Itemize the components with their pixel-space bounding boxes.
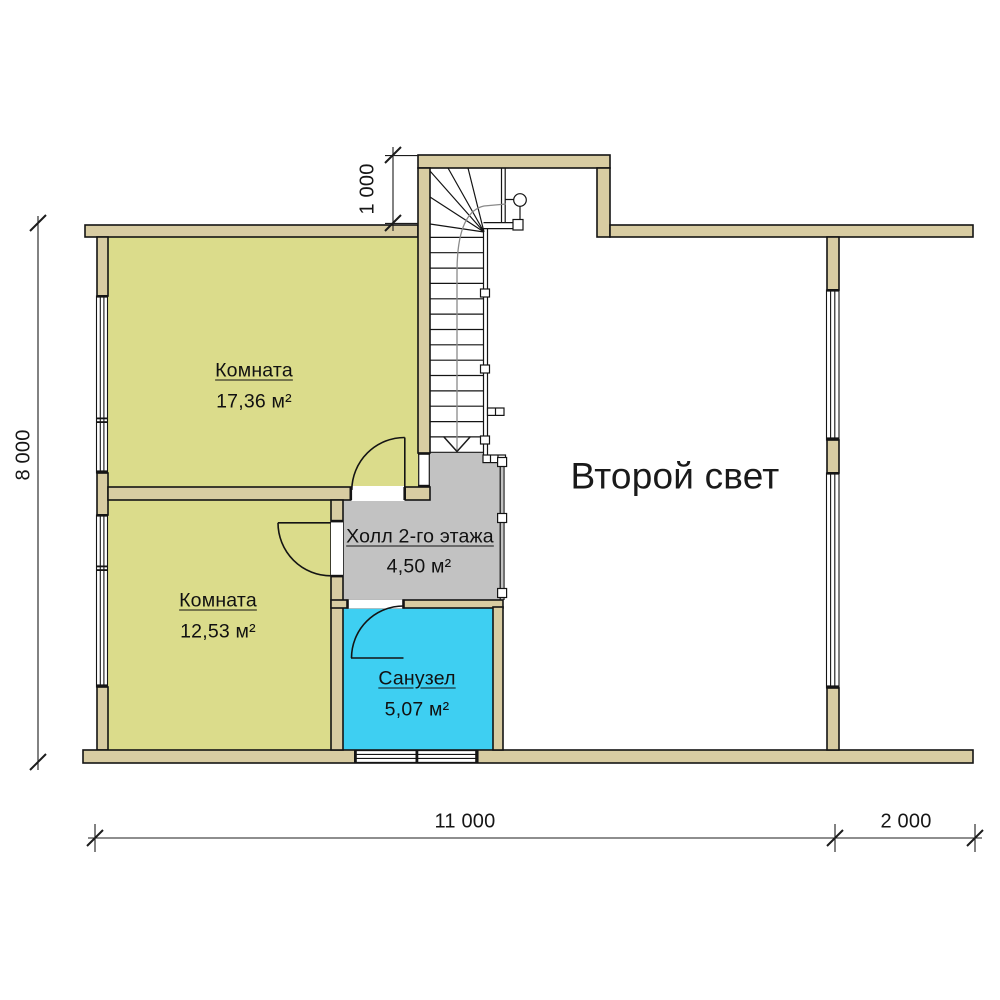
railing-post (498, 514, 507, 523)
bathroom-area: 5,07 м² (385, 699, 450, 722)
wall-right-pier-bottom (827, 688, 839, 750)
window-left-lower (97, 514, 108, 687)
hall-area: 4,50 м² (387, 556, 452, 579)
dim-label-8000: 8 000 (13, 429, 36, 480)
railing-post (498, 589, 507, 598)
open-space-label: Второй свет (550, 456, 800, 499)
newel-column (514, 194, 527, 207)
room-1-label: Комната (215, 360, 293, 383)
room-1-area: 17,36 м² (216, 391, 292, 414)
dim-label-1000: 1 000 (357, 163, 380, 214)
wall-left-pier (97, 473, 108, 515)
rail-connector (488, 408, 505, 415)
wall-left-lower (97, 687, 108, 750)
landing-edge (502, 168, 506, 222)
wall-stair-top (418, 155, 610, 168)
stair-handrail (484, 228, 488, 455)
staircase (430, 168, 526, 463)
dim-left-8000 (30, 215, 46, 770)
handrail-post (481, 365, 490, 373)
wall-bath-right (493, 607, 503, 750)
dim-label-11000: 11 000 (435, 811, 496, 834)
newel-post (513, 220, 523, 231)
handrail-post (481, 436, 490, 444)
dim-bottom (87, 824, 983, 852)
wall-bottom (83, 750, 973, 763)
wall-stair-bay-right (597, 168, 610, 237)
floor-plan: Комната 17,36 м² Комната 12,53 м² Холл 2… (0, 0, 1000, 1000)
wall-top-left (85, 225, 418, 237)
wall-right-pier-mid (827, 440, 839, 473)
stair-winders (430, 168, 484, 232)
wall-room1-hall-stub (405, 487, 430, 500)
dim-label-2000: 2 000 (880, 811, 931, 834)
hall-label: Холл 2-го этажа (346, 526, 494, 549)
wall-stairwell-left (418, 168, 430, 453)
dim-stair-1000 (385, 147, 418, 231)
window-left-upper (97, 295, 108, 473)
wall-top-right (610, 225, 973, 237)
bathroom-label: Санузел (378, 668, 455, 691)
wall-left-upper (97, 237, 108, 296)
floor-plan-drawing (0, 0, 1000, 1000)
railing-post (498, 458, 507, 467)
stairwell-wall-opening (418, 452, 430, 487)
handrail-post (481, 289, 490, 297)
wall-right-pier-top (827, 237, 839, 290)
room-2-label: Комната (179, 590, 257, 613)
newel-stem (505, 200, 520, 220)
window-bathroom-bottom (354, 751, 478, 763)
room-2-area: 12,53 м² (180, 621, 256, 644)
wall-room1-hall (108, 487, 352, 500)
window-right-upper (827, 289, 840, 440)
window-right-lower (827, 472, 840, 688)
